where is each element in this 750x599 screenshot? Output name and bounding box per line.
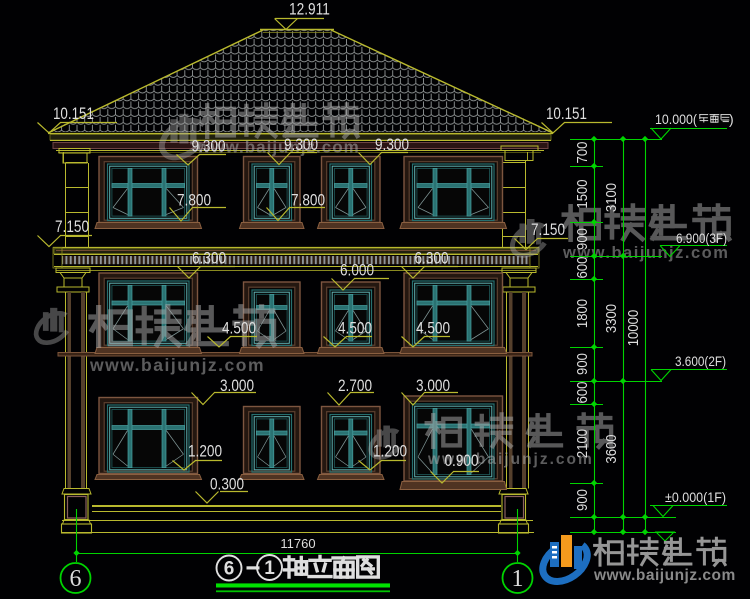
svg-text:7.800: 7.800 <box>291 191 325 210</box>
svg-text:±0.000(1F): ±0.000(1F) <box>665 489 726 505</box>
svg-text:6: 6 <box>70 566 82 592</box>
svg-text:4.500: 4.500 <box>416 319 450 338</box>
svg-text:3100: 3100 <box>603 183 620 212</box>
svg-text:1: 1 <box>512 566 524 592</box>
svg-text:): ) <box>729 111 734 127</box>
svg-text:600: 600 <box>574 382 591 404</box>
svg-text:www.baijunjz.com: www.baijunjz.com <box>593 567 736 584</box>
svg-text:3600: 3600 <box>603 434 620 463</box>
svg-text:4.500: 4.500 <box>338 319 372 338</box>
svg-text:10000: 10000 <box>625 310 642 347</box>
svg-text:600: 600 <box>574 257 591 279</box>
svg-text:1800: 1800 <box>574 299 591 328</box>
svg-text:7.150: 7.150 <box>55 217 89 236</box>
svg-text:www.baijunjz.com: www.baijunjz.com <box>89 355 265 375</box>
svg-text:6.000: 6.000 <box>340 261 374 280</box>
svg-text:1.200: 1.200 <box>373 442 407 461</box>
svg-text:6: 6 <box>224 559 235 580</box>
svg-text:2.700: 2.700 <box>338 376 372 395</box>
svg-text:1500: 1500 <box>574 179 591 208</box>
svg-text:12.911: 12.911 <box>289 0 330 19</box>
svg-text:3.000: 3.000 <box>220 376 254 395</box>
svg-text:700: 700 <box>574 142 591 164</box>
svg-text:9.300: 9.300 <box>375 135 409 154</box>
svg-text:10.000(: 10.000( <box>655 111 697 127</box>
svg-text:7.150: 7.150 <box>531 220 565 239</box>
svg-text:3300: 3300 <box>603 304 620 333</box>
svg-text:2100: 2100 <box>574 429 591 458</box>
svg-text:9.300: 9.300 <box>284 135 318 154</box>
svg-text:10.151: 10.151 <box>546 104 587 123</box>
svg-text:1.200: 1.200 <box>188 442 222 461</box>
svg-text:7.800: 7.800 <box>177 191 211 210</box>
svg-text:6.300: 6.300 <box>415 249 449 268</box>
svg-text:900: 900 <box>574 353 591 375</box>
svg-text:6.300: 6.300 <box>192 249 226 268</box>
svg-text:6.900(3F): 6.900(3F) <box>676 230 727 246</box>
svg-text:0.900: 0.900 <box>445 451 479 470</box>
svg-text:9.300: 9.300 <box>192 137 226 156</box>
svg-text:1: 1 <box>264 558 275 579</box>
svg-text:900: 900 <box>574 489 591 511</box>
svg-text:3.600(2F): 3.600(2F) <box>675 353 726 369</box>
svg-text:11760: 11760 <box>280 536 315 551</box>
svg-text:0.300: 0.300 <box>210 475 244 494</box>
svg-text:4.500: 4.500 <box>222 319 256 338</box>
svg-text:3.000: 3.000 <box>416 376 450 395</box>
svg-text:900: 900 <box>574 228 591 250</box>
svg-text:10.151: 10.151 <box>53 104 94 123</box>
